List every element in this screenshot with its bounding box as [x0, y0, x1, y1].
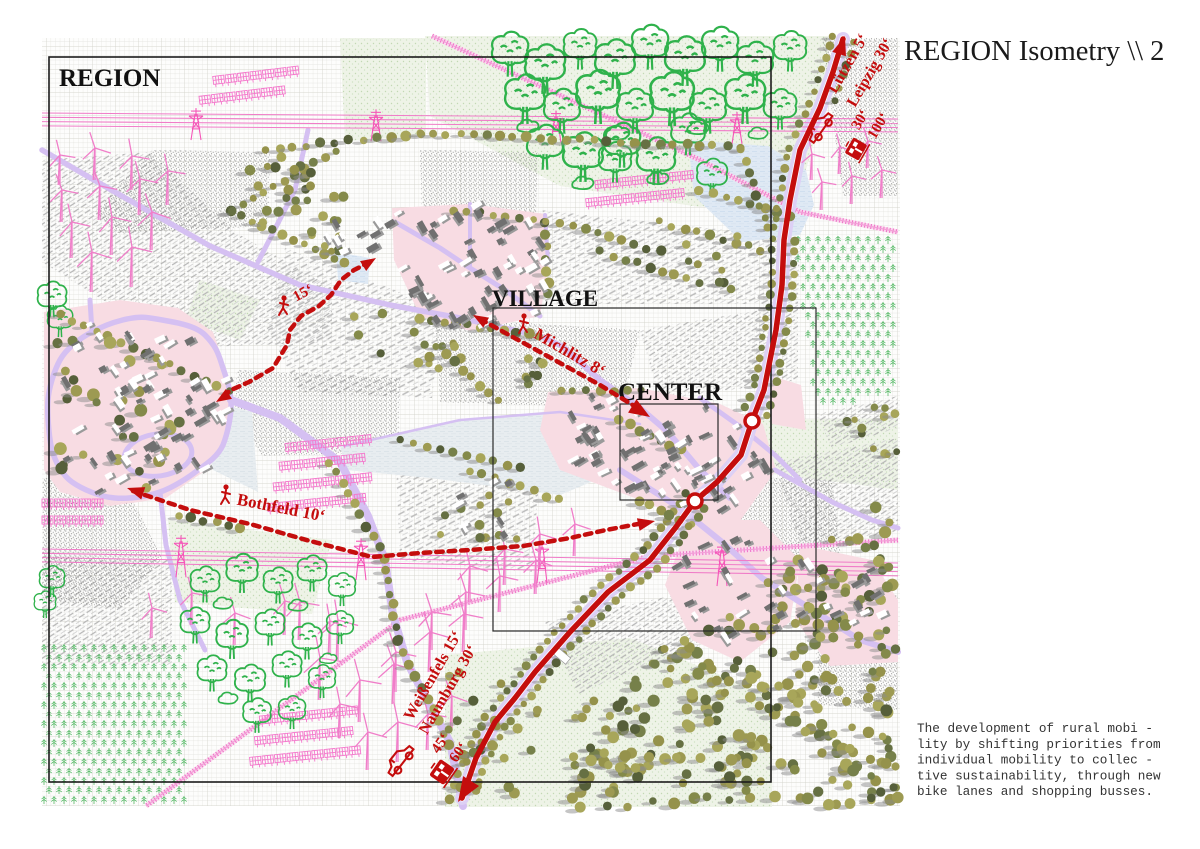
svg-text:REGION Isometry \\ 2: REGION Isometry \\ 2 — [904, 36, 1164, 67]
svg-text:VILLAGE: VILLAGE — [492, 286, 598, 311]
svg-text:individual mobility to collec: individual mobility to collec - — [917, 753, 1153, 768]
svg-text:tive sustainability, through n: tive sustainability, through new — [917, 768, 1161, 783]
svg-text:bike lanes and shopping busses: bike lanes and shopping busses. — [917, 784, 1153, 799]
svg-text:lity by shifting priorities fr: lity by shifting priorities from — [917, 737, 1161, 752]
svg-text:CENTER: CENTER — [618, 379, 723, 406]
svg-text:REGION: REGION — [59, 65, 160, 92]
svg-text:The development of rural mobi: The development of rural mobi - — [917, 721, 1153, 736]
